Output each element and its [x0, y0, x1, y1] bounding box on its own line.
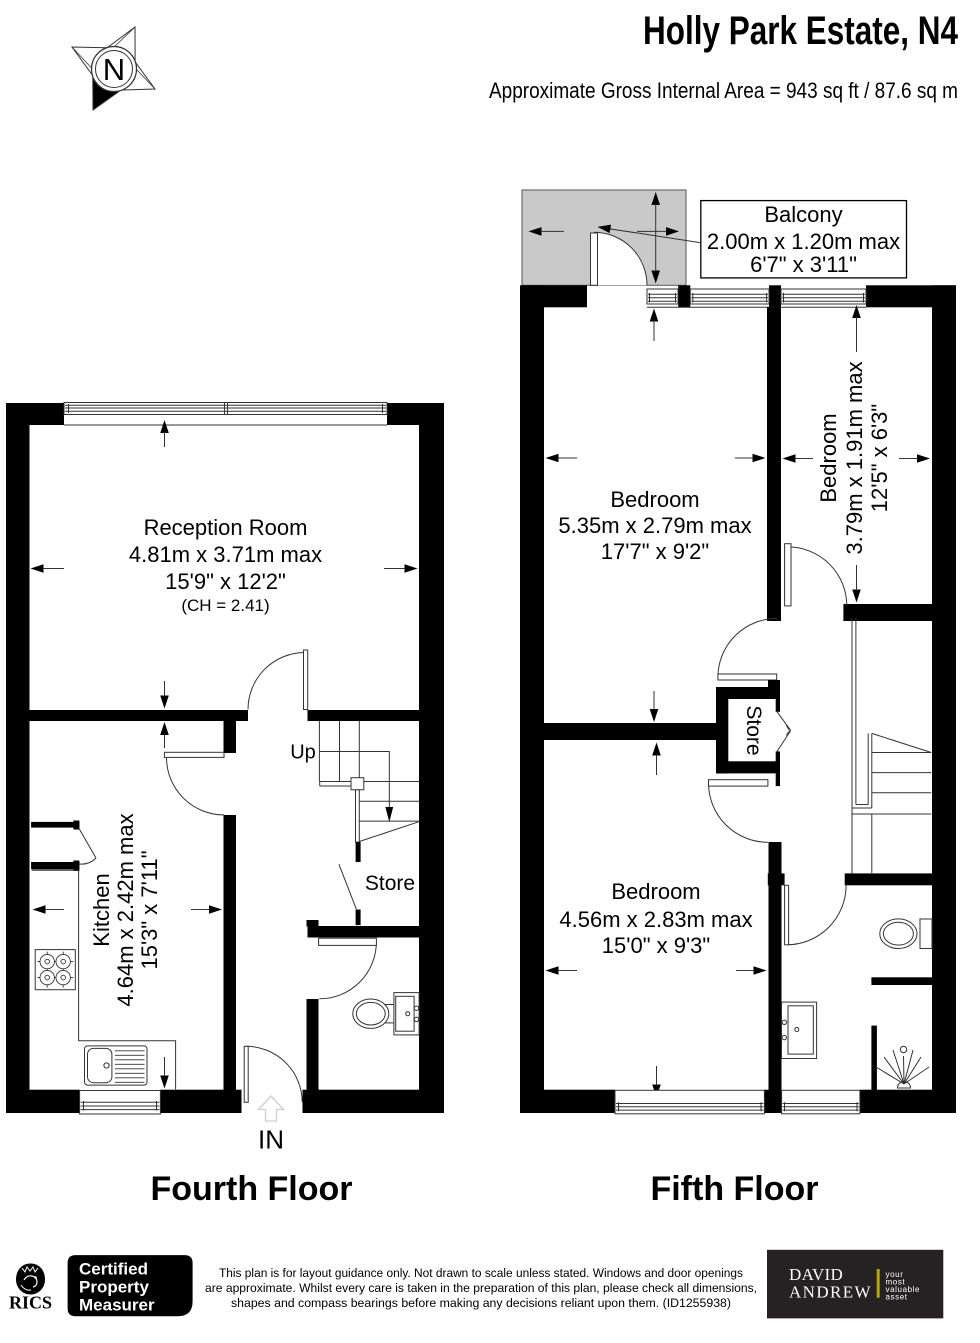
svg-text:6'7" x 3'11": 6'7" x 3'11": [750, 252, 857, 277]
svg-text:ANDREW: ANDREW: [789, 1283, 872, 1302]
svg-text:3.79m x 1.91m max: 3.79m x 1.91m max: [842, 361, 867, 554]
svg-text:IN: IN: [258, 1125, 284, 1155]
svg-text:4.64m x 2.42m max: 4.64m x 2.42m max: [113, 813, 138, 1006]
svg-text:Holly Park Estate, N4: Holly Park Estate, N4: [643, 9, 959, 53]
svg-text:Measurer: Measurer: [79, 1296, 155, 1315]
svg-text:Store: Store: [365, 872, 415, 895]
svg-text:Bedroom: Bedroom: [610, 487, 699, 512]
svg-text:Approximate Gross Internal Are: Approximate Gross Internal Area = 943 sq…: [489, 78, 958, 103]
svg-text:(CH = 2.41): (CH = 2.41): [181, 596, 269, 615]
svg-text:Fourth Floor: Fourth Floor: [150, 1170, 352, 1208]
svg-text:4.56m x 2.83m max: 4.56m x 2.83m max: [559, 907, 752, 932]
svg-text:15'0" x 9'3": 15'0" x 9'3": [602, 933, 710, 958]
svg-text:asset: asset: [886, 1293, 908, 1302]
svg-text:15'3" x 7'11": 15'3" x 7'11": [137, 850, 162, 969]
svg-text:This plan is for layout guidan: This plan is for layout guidance only. N…: [219, 1266, 743, 1280]
svg-text:N: N: [103, 52, 125, 87]
svg-text:4.81m x 3.71m max: 4.81m x 3.71m max: [129, 542, 322, 567]
svg-text:12'5" x 6'3": 12'5" x 6'3": [867, 404, 892, 512]
svg-text:Fifth Floor: Fifth Floor: [650, 1170, 818, 1208]
svg-text:2.00m x 1.20m max: 2.00m x 1.20m max: [707, 229, 900, 254]
svg-text:Reception Room: Reception Room: [144, 515, 308, 540]
svg-text:are approximate. Whilst every: are approximate. Whilst every care is ta…: [205, 1281, 757, 1295]
svg-text:Kitchen: Kitchen: [89, 873, 114, 946]
svg-text:15'9" x 12'2": 15'9" x 12'2": [165, 569, 286, 594]
svg-text:Store: Store: [742, 705, 765, 755]
svg-text:17'7" x 9'2": 17'7" x 9'2": [601, 539, 709, 564]
svg-text:Bedroom: Bedroom: [611, 879, 700, 904]
svg-text:Up: Up: [290, 742, 316, 764]
svg-text:5.35m x 2.79m max: 5.35m x 2.79m max: [558, 513, 751, 538]
svg-text:Bedroom: Bedroom: [816, 413, 841, 502]
svg-text:Certified: Certified: [79, 1260, 148, 1279]
svg-text:DAVID: DAVID: [789, 1265, 843, 1284]
svg-text:RICS: RICS: [9, 1293, 52, 1313]
svg-text:shapes and compass bearings be: shapes and compass bearings before makin…: [231, 1296, 731, 1310]
svg-text:Property: Property: [79, 1278, 149, 1297]
svg-text:Balcony: Balcony: [764, 202, 842, 227]
